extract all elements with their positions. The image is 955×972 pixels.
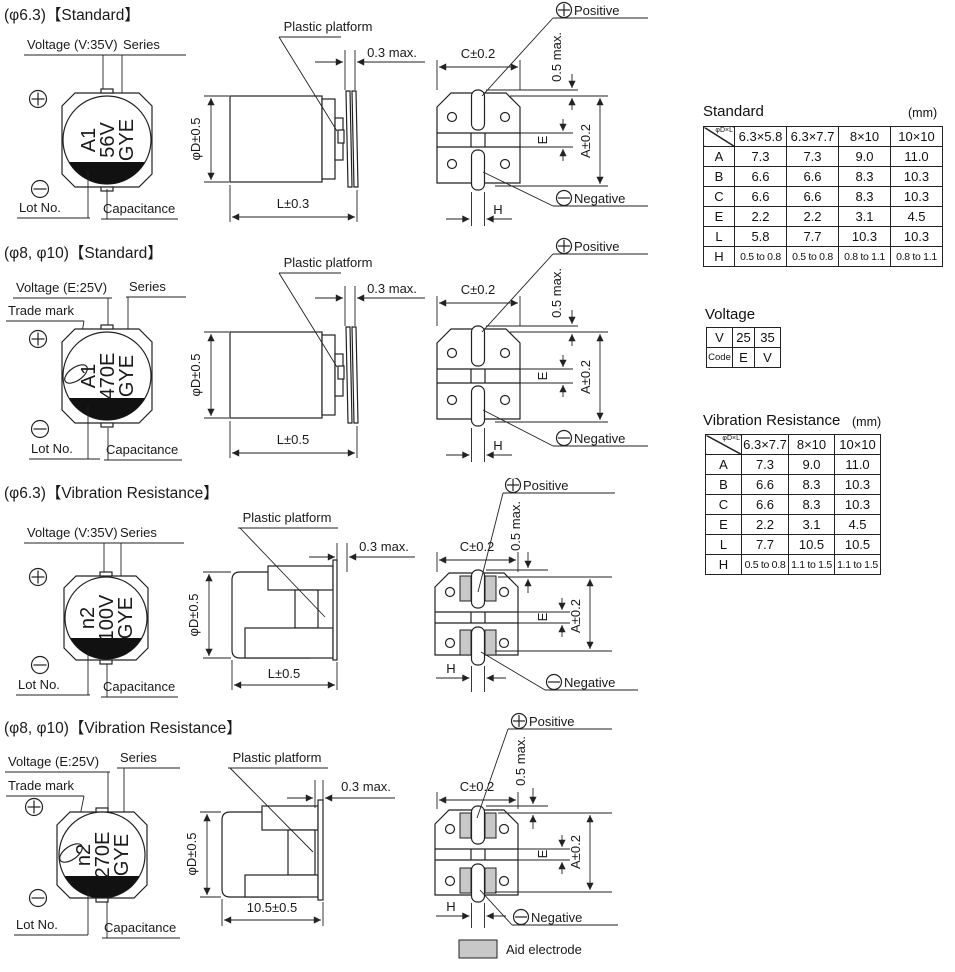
positive-symbol — [26, 799, 43, 816]
svg-text:E: E — [535, 371, 550, 380]
svg-text:10.5±0.5: 10.5±0.5 — [247, 900, 298, 915]
capacitor-side-view: φD±0.5 Plastic platform 0.3 max. L±0.5 — [186, 510, 415, 690]
label-capacitance: Capacitance — [101, 189, 178, 219]
capacitor-bottom-view: C±0.2 0.5 max. E A±0.2 — [437, 239, 648, 463]
table-row: H0.5 to 0.80.5 to 0.80.8 to 1.10.8 to 1.… — [704, 247, 943, 267]
section-std-8-10: (φ8, φ10)【Standard】 Voltage (E:25V) Seri… — [0, 235, 700, 478]
negative-symbol — [32, 657, 49, 674]
capacitor-bottom-view: C±0.2 0.5 max. E A±0.2 — [435, 478, 638, 692]
svg-text:Positive: Positive — [574, 3, 620, 18]
svg-text:Capacitance: Capacitance — [103, 679, 175, 694]
svg-text:φD±0.5: φD±0.5 — [188, 353, 203, 396]
svg-text:Trade mark: Trade mark — [8, 778, 74, 793]
svg-text:E: E — [535, 849, 550, 858]
svg-text:0.5 max.: 0.5 max. — [549, 32, 564, 82]
aid-electrode — [460, 813, 471, 838]
negative-symbol — [32, 181, 49, 198]
dim-c: C±0.2 — [437, 539, 518, 572]
svg-text:Series: Series — [123, 37, 160, 52]
svg-text:GYE: GYE — [115, 597, 137, 639]
section-std-6_3: (φ6.3)【Standard】 Voltage (V:35V) Series … — [0, 0, 700, 235]
tables-panel: Standard (mm) φD×L 6.3×5.8 6.3×7.7 8×10 … — [700, 0, 955, 972]
svg-text:L±0.3: L±0.3 — [277, 196, 309, 211]
table-row: E2.23.14.5 — [706, 515, 881, 535]
capacitor-bottom-view: C±0.2 0.5 max. E A±0.2 — [435, 714, 618, 929]
negative-icon — [557, 191, 572, 206]
svg-text:Capacitance: Capacitance — [103, 201, 175, 216]
svg-text:A±0.2: A±0.2 — [568, 835, 583, 869]
capacitor-top-view: A1 470E GYE — [62, 325, 152, 427]
dim-h: H — [436, 899, 506, 928]
aid-electrode — [485, 813, 496, 838]
svg-text:H: H — [493, 202, 502, 217]
svg-text:Plastic platform: Plastic platform — [284, 255, 373, 270]
svg-text:A±0.2: A±0.2 — [578, 124, 593, 158]
table-row: E2.22.23.14.5 — [704, 207, 943, 227]
svg-text:0.3 max.: 0.3 max. — [367, 45, 417, 60]
vibration-table-title: Vibration Resistance — [703, 412, 840, 429]
standard-table-unit: (mm) — [908, 106, 937, 120]
svg-text:Lot No.: Lot No. — [19, 200, 61, 215]
svg-text:Voltage (E:25V): Voltage (E:25V) — [8, 754, 99, 769]
svg-text:0.3 max.: 0.3 max. — [341, 779, 391, 794]
dim-length: L±0.5 — [230, 421, 357, 458]
svg-text:Capacitance: Capacitance — [104, 920, 176, 935]
svg-text:Negative: Negative — [574, 431, 625, 446]
svg-text:0.5 max.: 0.5 max. — [508, 501, 523, 551]
section-title: (φ8, φ10)【Vibration Resistance】 — [4, 720, 242, 737]
positive-icon — [557, 3, 572, 18]
section-title: (φ6.3)【Vibration Resistance】 — [4, 485, 219, 502]
svg-text:Plastic platform: Plastic platform — [233, 750, 322, 765]
svg-text:H: H — [446, 899, 455, 914]
positive-icon — [506, 478, 521, 493]
table-row: CodeEV — [707, 348, 781, 368]
positive-icon — [512, 714, 527, 729]
datasheet-page: (φ6.3)【Standard】 Voltage (V:35V) Series … — [0, 0, 955, 972]
svg-text:A±0.2: A±0.2 — [578, 360, 593, 394]
callout-negative: Negative — [481, 652, 638, 690]
aid-electrode — [460, 630, 471, 655]
negative-terminal — [472, 386, 485, 426]
aid-electrode — [460, 576, 471, 601]
voltage-table-title: Voltage — [705, 306, 755, 323]
callout-positive: Positive — [482, 239, 648, 333]
table-row: H0.5 to 0.81.1 to 1.51.1 to 1.5 — [706, 555, 881, 575]
svg-text:Positive: Positive — [574, 239, 620, 254]
dim-e: E — [535, 355, 563, 397]
svg-text:Lot No.: Lot No. — [16, 917, 58, 932]
table-row: L7.710.510.5 — [706, 535, 881, 555]
table-row: B6.66.68.310.3 — [704, 167, 943, 187]
capacitor-top-view: A1 56V GYE — [62, 89, 152, 191]
aid-electrode — [485, 576, 496, 601]
capacitor-side-view: φD±0.5 Plastic platform 0.3 max. L±0.5 — [188, 255, 425, 458]
svg-text:0.5 max.: 0.5 max. — [549, 268, 564, 318]
svg-text:Voltage (E:25V): Voltage (E:25V) — [16, 280, 107, 295]
negative-terminal — [472, 150, 485, 190]
svg-text:Voltage (V:35V): Voltage (V:35V) — [27, 525, 118, 540]
dim-diameter: φD±0.5 — [188, 96, 229, 182]
label-capacitance: Capacitance — [102, 902, 180, 938]
svg-text:Voltage (V:35V): Voltage (V:35V) — [27, 37, 118, 52]
table-row: B6.68.310.3 — [706, 475, 881, 495]
dim-h: H — [446, 428, 512, 462]
vibration-table: φD×L 6.3×7.7 8×10 10×10 A7.39.011.0 B6.6… — [705, 434, 881, 575]
svg-text:GYE: GYE — [116, 355, 138, 397]
negative-symbol — [32, 421, 49, 438]
aid-electrode — [460, 868, 471, 893]
svg-text:L±0.5: L±0.5 — [277, 432, 309, 447]
positive-symbol — [30, 91, 47, 108]
capacitor-side-view: φD±0.5 Plastic platform 0.3 max. 10.5±0.… — [184, 750, 395, 926]
svg-text:0.3 max.: 0.3 max. — [367, 281, 417, 296]
dim-gap: 0.3 max. — [315, 281, 425, 326]
svg-text:Lot No.: Lot No. — [31, 441, 73, 456]
dim-e: E — [535, 119, 563, 161]
svg-text:φD±0.5: φD±0.5 — [188, 117, 203, 160]
svg-text:Series: Series — [120, 750, 157, 765]
dim-length: 10.5±0.5 — [222, 899, 323, 926]
dim-h: H — [436, 661, 506, 692]
dim-e: E — [535, 835, 562, 874]
svg-text:Negative: Negative — [574, 191, 625, 206]
section-title: (φ8, φ10)【Standard】 — [4, 245, 163, 262]
svg-text:0.3 max.: 0.3 max. — [359, 539, 409, 554]
svg-text:Plastic platform: Plastic platform — [243, 510, 332, 525]
callout-positive: Positive — [477, 714, 612, 819]
capacitor-bottom-view: C±0.2 0.5 max. E A±0.2 — [437, 3, 648, 227]
section-vr-8-10: (φ8, φ10)【Vibration Resistance】 Voltage … — [0, 710, 700, 972]
dim-diameter: φD±0.5 — [186, 572, 231, 658]
svg-text:Series: Series — [120, 525, 157, 540]
dim-diameter: φD±0.5 — [184, 812, 221, 897]
table-row: A7.39.011.0 — [706, 455, 881, 475]
capacitor-side-view: φD±0.5 Plastic platform 0.3 max. L±0.3 — [188, 19, 425, 222]
svg-text:GYE: GYE — [111, 834, 133, 876]
capacitor-top-view: n2 270E GYE — [57, 808, 147, 902]
svg-text:Series: Series — [129, 279, 166, 294]
positive-terminal — [472, 806, 485, 844]
svg-text:Trade mark: Trade mark — [8, 303, 74, 318]
svg-text:0.5 max.: 0.5 max. — [513, 736, 528, 786]
standard-table: φD×L 6.3×5.8 6.3×7.7 8×10 10×10 A7.37.39… — [703, 126, 943, 267]
dim-length: L±0.5 — [232, 660, 337, 690]
corner-cell: φD×L — [704, 127, 735, 147]
svg-text:Plastic platform: Plastic platform — [284, 19, 373, 34]
corner-cell: φD×L — [706, 435, 742, 455]
standard-table-title: Standard — [703, 103, 764, 120]
dim-c: C±0.2 — [437, 779, 518, 809]
legend-aid-electrode: Aid electrode — [459, 940, 582, 958]
svg-text:Positive: Positive — [523, 478, 569, 493]
negative-icon — [557, 431, 572, 446]
table-row: V2535 — [707, 328, 781, 348]
svg-text:C±0.2: C±0.2 — [461, 282, 496, 297]
svg-text:Lot No.: Lot No. — [18, 677, 60, 692]
negative-terminal — [472, 864, 485, 902]
svg-text:GYE: GYE — [116, 119, 138, 161]
positive-symbol — [30, 331, 47, 348]
dim-h: H — [446, 192, 512, 226]
dim-e: E — [535, 598, 562, 637]
capacitor-top-view: n2 100V GYE — [64, 572, 148, 664]
svg-text:Positive: Positive — [529, 714, 575, 729]
dim-gap: 0.3 max. — [287, 779, 395, 808]
svg-text:φD±0.5: φD±0.5 — [184, 832, 199, 875]
dim-gap: 0.3 max. — [315, 45, 425, 90]
legend-label: Aid electrode — [506, 942, 582, 957]
negative-icon — [547, 675, 562, 690]
svg-text:H: H — [493, 438, 502, 453]
negative-icon — [514, 910, 529, 925]
label-capacitance: Capacitance — [104, 428, 182, 460]
positive-symbol — [30, 569, 47, 586]
svg-text:L±0.5: L±0.5 — [268, 666, 300, 681]
table-row: L5.87.710.310.3 — [704, 227, 943, 247]
section-title: (φ6.3)【Standard】 — [4, 7, 140, 24]
callout-positive: Positive — [482, 3, 648, 97]
vibration-table-unit: (mm) — [852, 415, 881, 429]
svg-text:E: E — [535, 135, 550, 144]
svg-text:φD±0.5: φD±0.5 — [186, 593, 201, 636]
section-vr-6_3: (φ6.3)【Vibration Resistance】 Voltage (V:… — [0, 478, 700, 710]
table-row: C6.68.310.3 — [706, 495, 881, 515]
svg-text:E: E — [535, 612, 550, 621]
dim-diameter: φD±0.5 — [188, 332, 229, 418]
svg-text:Capacitance: Capacitance — [106, 442, 178, 457]
svg-text:Negative: Negative — [564, 675, 615, 690]
svg-text:H: H — [446, 661, 455, 676]
aid-electrode — [485, 868, 496, 893]
voltage-table: V2535 CodeEV — [706, 327, 781, 368]
aid-electrode — [485, 630, 496, 655]
svg-text:Negative: Negative — [531, 910, 582, 925]
aid-electrode-swatch — [459, 940, 497, 958]
table-row: C6.66.68.310.3 — [704, 187, 943, 207]
negative-symbol — [30, 890, 47, 907]
label-capacitance: Capacitance — [101, 664, 178, 697]
svg-text:C±0.2: C±0.2 — [460, 779, 495, 794]
negative-terminal — [472, 627, 485, 665]
dim-length: L±0.3 — [230, 185, 357, 222]
positive-icon — [557, 239, 572, 254]
table-row: A7.37.39.011.0 — [704, 147, 943, 167]
svg-text:C±0.2: C±0.2 — [461, 46, 496, 61]
svg-text:A±0.2: A±0.2 — [568, 599, 583, 633]
